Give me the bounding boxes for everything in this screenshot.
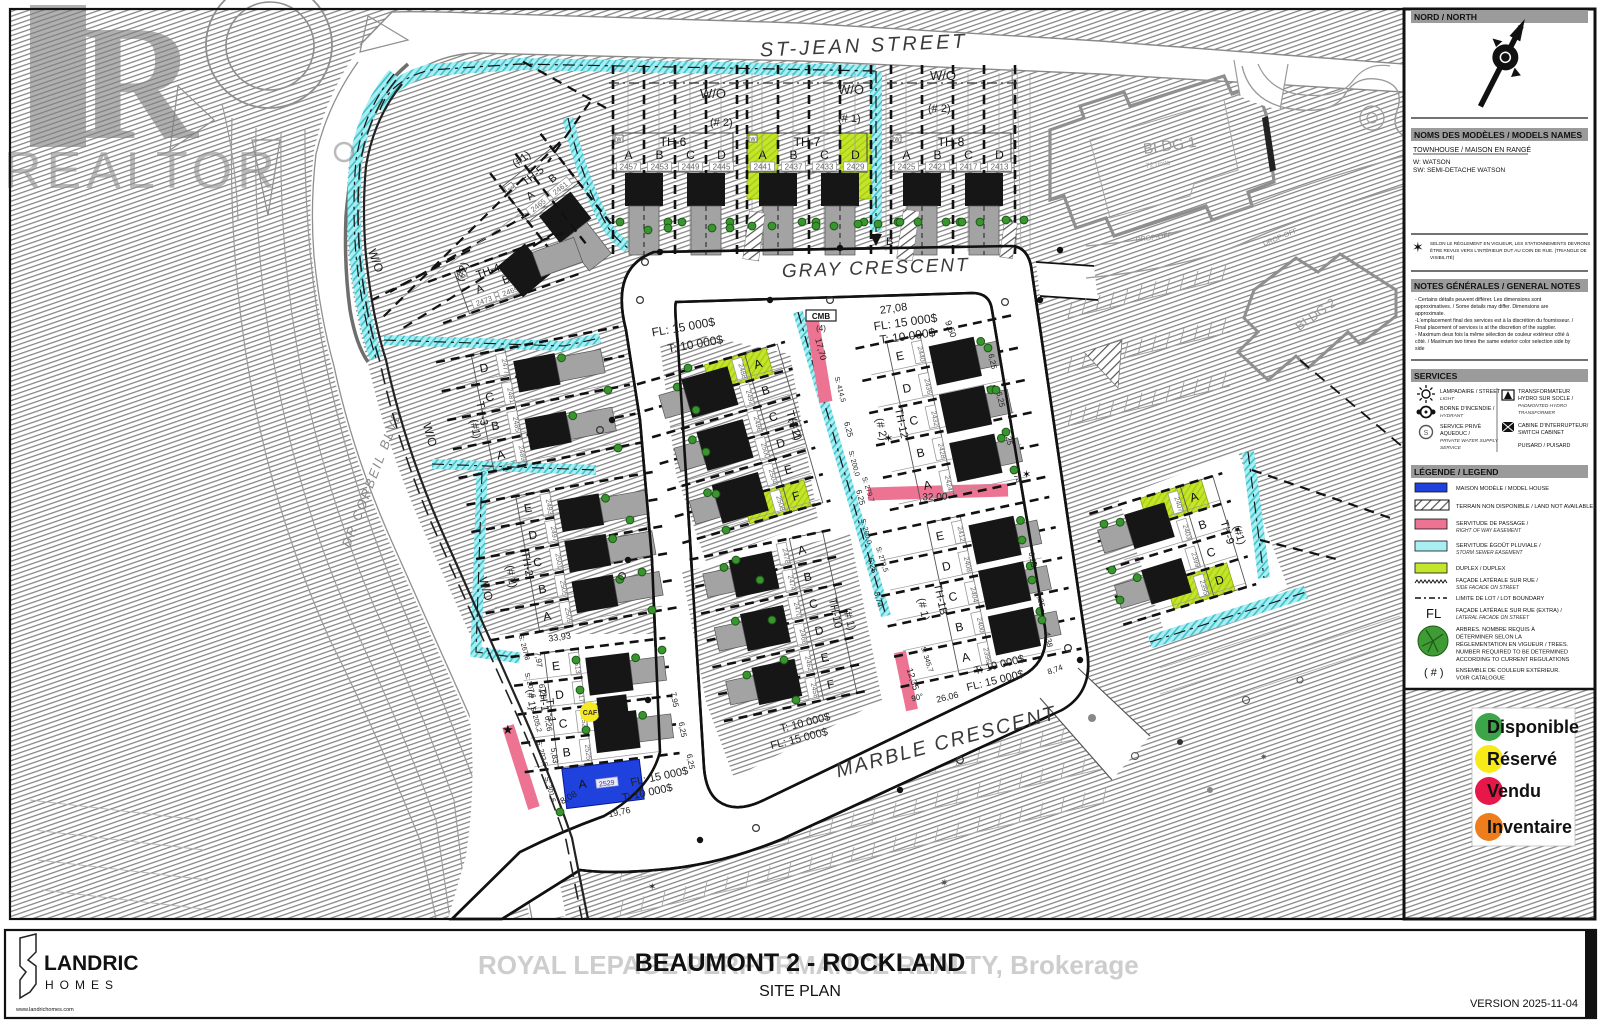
svg-text:B: B	[655, 148, 663, 162]
svg-text:SERVICE PRIVÉ: SERVICE PRIVÉ	[1440, 423, 1482, 430]
svg-text:Disponible: Disponible	[1487, 717, 1579, 737]
svg-text:✶: ✶	[648, 882, 656, 893]
svg-text:CAF: CAF	[583, 710, 598, 717]
svg-text:W: W	[894, 137, 900, 143]
svg-text:✷: ✷	[1260, 752, 1268, 762]
svg-text:E: E	[551, 659, 561, 674]
svg-text:STORM SEWER EASEMENT: STORM SEWER EASEMENT	[1456, 550, 1524, 556]
svg-text:S: S	[1424, 430, 1429, 437]
svg-text:TOWNHOUSE / MAISON EN RANGÉ: TOWNHOUSE / MAISON EN RANGÉ	[1413, 145, 1531, 154]
svg-text:LIMITE DE LOT / LOT BOUNDARY: LIMITE DE LOT / LOT BOUNDARY	[1456, 596, 1545, 602]
svg-text:LAMPADAIRE / STREET: LAMPADAIRE / STREET	[1440, 389, 1501, 395]
svg-text:TH-7: TH-7	[794, 135, 821, 149]
svg-text:✶: ✶	[1412, 239, 1424, 255]
svg-text:2433: 2433	[816, 163, 834, 172]
svg-text:FAÇADE LATÉRALE SUR RUE (EXTRA: FAÇADE LATÉRALE SUR RUE (EXTRA) /	[1456, 607, 1562, 614]
svg-text:32,00: 32,00	[922, 492, 948, 504]
svg-text:W: WATSON: W: WATSON	[1413, 159, 1451, 166]
svg-text:D: D	[717, 148, 726, 162]
svg-text:LATERAL FACADE ON STREET: LATERAL FACADE ON STREET	[1456, 615, 1530, 621]
svg-text:SWITCH CABINET: SWITCH CABINET	[1518, 430, 1565, 436]
svg-text:B: B	[562, 745, 572, 760]
svg-text:(# 2): (# 2)	[928, 103, 951, 115]
svg-text:side: side	[1415, 346, 1425, 352]
svg-text:DÉTERMINER SELON LA: DÉTERMINER SELON LA	[1456, 634, 1522, 641]
svg-text:D: D	[995, 148, 1004, 162]
svg-text:W: W	[750, 137, 756, 143]
svg-text:2445: 2445	[713, 163, 731, 172]
svg-text:Réservé: Réservé	[1487, 749, 1557, 769]
svg-text:TERRAIN NON DISPONIBLE / LAND: TERRAIN NON DISPONIBLE / LAND NOT AVAILA…	[1456, 504, 1593, 510]
svg-text:NUMBER REQUIRED TO BE DETERMIN: NUMBER REQUIRED TO BE DETERMINED	[1456, 650, 1568, 656]
svg-text:TH-6: TH-6	[660, 135, 687, 149]
svg-text:A: A	[902, 148, 910, 162]
svg-text:ENSEMBLE DE COULEUR EXTÉRIEUR.: ENSEMBLE DE COULEUR EXTÉRIEUR.	[1456, 667, 1560, 674]
svg-text:PRIVATE WATER SUPPLY: PRIVATE WATER SUPPLY	[1440, 438, 1499, 444]
svg-text:TRANSFORMER: TRANSFORMER	[1518, 410, 1556, 416]
svg-text:SERVITUDE DE PASSAGE /: SERVITUDE DE PASSAGE /	[1456, 521, 1529, 527]
svg-text:2457: 2457	[620, 163, 638, 172]
svg-text:VISIBILITÉ): VISIBILITÉ)	[1430, 254, 1455, 260]
svg-text:C: C	[686, 148, 695, 162]
svg-text:B: B	[933, 148, 941, 162]
svg-text:REALTOR: REALTOR	[4, 142, 280, 200]
svg-text:PUISARD / PUISARD: PUISARD / PUISARD	[1518, 443, 1571, 449]
svg-text:- Maximum deux fois la même sé: - Maximum deux fois la même sélection de…	[1415, 332, 1569, 338]
svg-text:SERVICE: SERVICE	[1440, 445, 1462, 451]
svg-text:BORNE D'INCENDIE /: BORNE D'INCENDIE /	[1440, 406, 1495, 412]
svg-text:B: B	[789, 148, 797, 162]
svg-text:2429: 2429	[847, 163, 865, 172]
svg-text:SW: SEMI-DETACHE WATSON: SW: SEMI-DETACHE WATSON	[1413, 167, 1506, 174]
svg-text:2441: 2441	[754, 163, 772, 172]
svg-text:MAISON MODÈLE / MODEL HOUSE: MAISON MODÈLE / MODEL HOUSE	[1456, 485, 1549, 492]
svg-text:W/O: W/O	[838, 82, 864, 97]
svg-text:FL: FL	[1426, 606, 1441, 621]
svg-text:W: W	[616, 137, 622, 143]
svg-text:D: D	[851, 148, 860, 162]
svg-text:RÉGLEMENTATION EN VIGUEUR / TR: RÉGLEMENTATION EN VIGUEUR / TREES.	[1456, 641, 1569, 648]
svg-text:TRANSFORMATEUR: TRANSFORMATEUR	[1518, 389, 1570, 395]
svg-text:SITE PLAN: SITE PLAN	[759, 983, 841, 1000]
svg-text:W/O: W/O	[930, 68, 956, 83]
svg-text:(# 1): (# 1)	[838, 113, 861, 125]
svg-text:FAÇADE LATÉRALE SUR RUE /: FAÇADE LATÉRALE SUR RUE /	[1456, 577, 1538, 584]
svg-text:(# 2): (# 2)	[710, 117, 733, 129]
svg-text:✶: ✶	[1022, 469, 1031, 481]
svg-text:BEAUMONT 2 - ROCKLAND: BEAUMONT 2 - ROCKLAND	[635, 949, 966, 977]
svg-text:HYDRANT: HYDRANT	[1440, 413, 1464, 419]
svg-text:( # ): ( # )	[1424, 667, 1444, 679]
svg-text:Final placement of services is: Final placement of services is at the di…	[1415, 325, 1556, 331]
svg-text:2417: 2417	[960, 163, 978, 172]
svg-text:approximatives. / Some details: approximatives. / Some details may diffe…	[1415, 304, 1549, 310]
svg-text:A: A	[578, 777, 588, 792]
svg-text:2425: 2425	[898, 163, 916, 172]
svg-text:ARBRES. NOMBRE REQUIS À: ARBRES. NOMBRE REQUIS À	[1456, 626, 1535, 633]
svg-text:NOTES GÉNÉRALES / GENERAL NOTE: NOTES GÉNÉRALES / GENERAL NOTES	[1414, 281, 1581, 291]
svg-text:C: C	[820, 148, 829, 162]
svg-text:TH-8: TH-8	[938, 135, 965, 149]
svg-text:RIGHT OF WAY EASEMENT: RIGHT OF WAY EASEMENT	[1456, 528, 1522, 534]
svg-text:2421: 2421	[929, 163, 947, 172]
svg-text:W/O: W/O	[700, 86, 726, 101]
svg-text:VOIR CATALOGUE: VOIR CATALOGUE	[1456, 676, 1505, 682]
svg-text:HOMES: HOMES	[45, 978, 119, 992]
svg-text:SELON LE RÈGLEMENT EN VIGUEUR,: SELON LE RÈGLEMENT EN VIGUEUR, LES STATI…	[1430, 240, 1590, 246]
svg-text:C: C	[964, 148, 973, 162]
svg-text:A: A	[624, 148, 632, 162]
svg-text:AQUEDUC /: AQUEDUC /	[1440, 431, 1470, 437]
svg-text:Vendu: Vendu	[1487, 781, 1541, 801]
svg-text:★: ★	[502, 722, 514, 737]
svg-text:HYDRO SUR SOCLE /: HYDRO SUR SOCLE /	[1518, 396, 1574, 402]
svg-text:Inventaire: Inventaire	[1487, 817, 1572, 837]
svg-text:2453: 2453	[651, 163, 669, 172]
svg-text:www.landrichomes.com: www.landrichomes.com	[15, 1007, 74, 1013]
svg-text:2449: 2449	[682, 163, 700, 172]
svg-text:LIGHT: LIGHT	[1440, 396, 1455, 402]
svg-text:A: A	[758, 148, 766, 162]
svg-text:LÉGENDE / LEGEND: LÉGENDE / LEGEND	[1414, 467, 1499, 477]
svg-text:SERVICES: SERVICES	[1414, 371, 1458, 381]
svg-text:LANDRIC: LANDRIC	[44, 952, 139, 975]
svg-text:✶: ✶	[884, 433, 893, 445]
svg-text:- Certains détails peuvent dif: - Certains détails peuvent différer. Les…	[1415, 297, 1542, 303]
svg-text:côté. / Maximum two times the: côté. / Maximum two times the same exter…	[1415, 339, 1571, 345]
svg-text:CMB: CMB	[812, 312, 830, 321]
svg-text:VERSION 2025-11-04: VERSION 2025-11-04	[1470, 998, 1578, 1010]
svg-text:NOMS DES MODÈLES / MODELS NAME: NOMS DES MODÈLES / MODELS NAMES	[1414, 130, 1582, 140]
svg-text:(4): (4)	[816, 324, 826, 333]
svg-text:CABINE D'INTERRUPTEUR/: CABINE D'INTERRUPTEUR/	[1518, 423, 1589, 429]
svg-text:2437: 2437	[785, 163, 803, 172]
svg-text:SIDE FACADE ON STREET: SIDE FACADE ON STREET	[1456, 585, 1520, 591]
svg-text:SERVITUDE ÉGOÛT PLUVIALE /: SERVITUDE ÉGOÛT PLUVIALE /	[1456, 542, 1541, 549]
svg-text:ACCORDING TO CURRENT REGULATIO: ACCORDING TO CURRENT REGULATIONS	[1456, 657, 1570, 663]
svg-text:2413: 2413	[991, 163, 1009, 172]
svg-text:DUPLEX / DUPLEX: DUPLEX / DUPLEX	[1456, 566, 1506, 572]
svg-text:approximate.: approximate.	[1415, 311, 1445, 317]
svg-text:-L'emplacement final des servi: -L'emplacement final des services est à …	[1415, 318, 1574, 324]
svg-text:NORD / NORTH: NORD / NORTH	[1414, 12, 1477, 22]
svg-text:PADMONTED HYDRO: PADMONTED HYDRO	[1518, 403, 1567, 409]
svg-text:ÊTRE REVUS VERS L'INTÉRIEUR DU: ÊTRE REVUS VERS L'INTÉRIEUR DUT AU COIN …	[1430, 246, 1587, 253]
svg-text:✷: ✷	[940, 878, 948, 889]
